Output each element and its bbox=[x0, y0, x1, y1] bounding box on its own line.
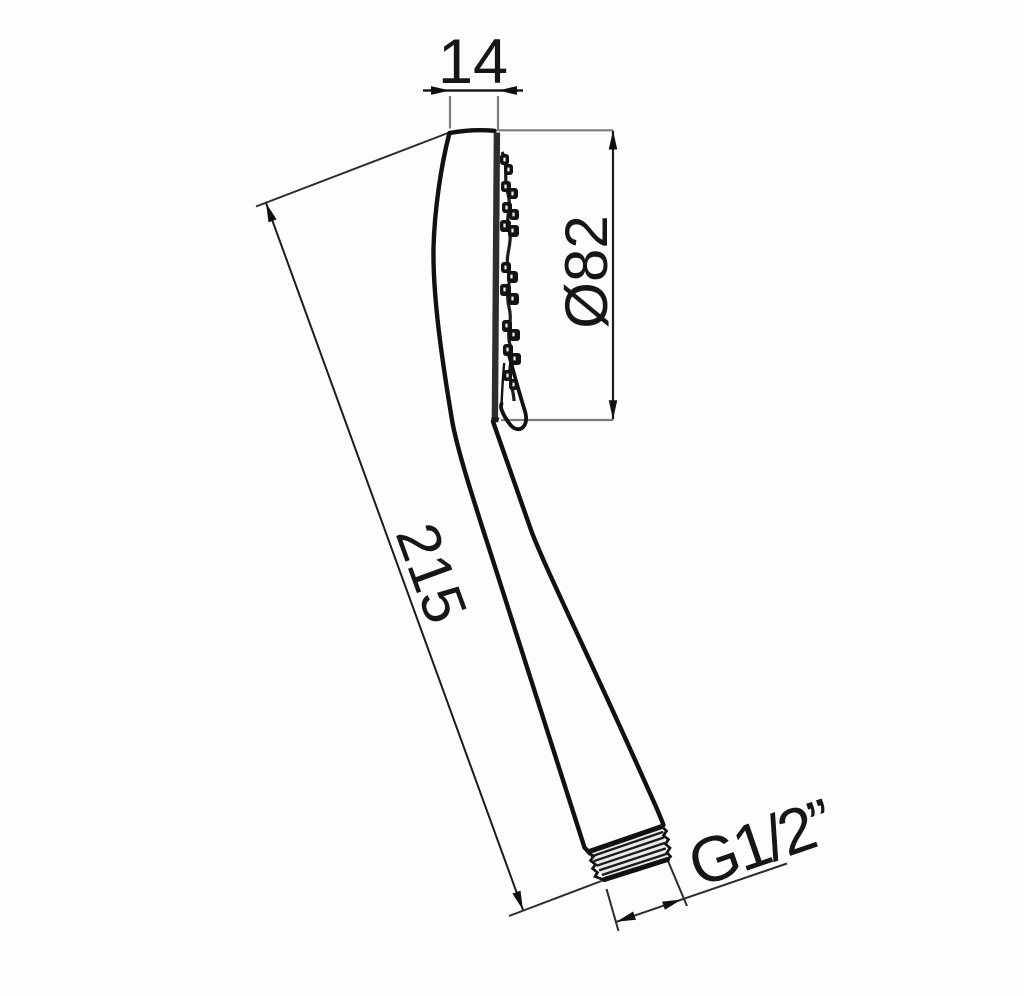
svg-text:14: 14 bbox=[438, 27, 508, 97]
svg-text:215: 215 bbox=[383, 515, 480, 632]
svg-text:Ø82: Ø82 bbox=[553, 215, 620, 328]
svg-text:G1/2”: G1/2” bbox=[679, 785, 840, 901]
